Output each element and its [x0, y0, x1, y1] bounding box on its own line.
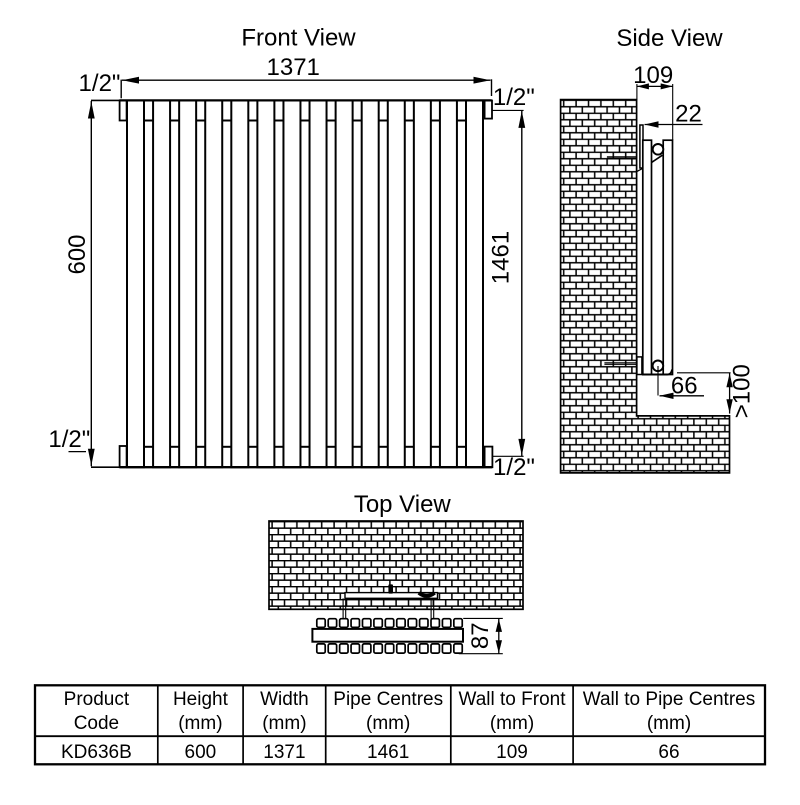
svg-text:(mm): (mm)	[490, 713, 534, 734]
svg-text:Pipe Centres: Pipe Centres	[333, 689, 443, 710]
svg-text:Width: Width	[260, 689, 309, 710]
svg-text:KD636B: KD636B	[61, 742, 132, 763]
svg-text:Code: Code	[74, 713, 119, 734]
svg-text:(mm): (mm)	[262, 713, 306, 734]
svg-text:(mm): (mm)	[366, 713, 410, 734]
svg-text:22: 22	[675, 101, 702, 128]
svg-text:Top View: Top View	[354, 491, 452, 518]
svg-text:Side View: Side View	[616, 25, 723, 52]
svg-text:1461: 1461	[367, 742, 409, 763]
svg-text:1/2": 1/2"	[79, 70, 121, 97]
svg-text:87: 87	[467, 622, 494, 649]
svg-text:(mm): (mm)	[647, 713, 691, 734]
svg-text:1371: 1371	[263, 742, 305, 763]
svg-text:1/2": 1/2"	[493, 84, 535, 111]
svg-text:600: 600	[185, 742, 217, 763]
svg-text:1/2": 1/2"	[493, 454, 535, 481]
svg-text:1371: 1371	[267, 54, 320, 81]
svg-text:66: 66	[658, 742, 679, 763]
svg-text:Product: Product	[64, 689, 130, 710]
svg-text:109: 109	[496, 742, 528, 763]
svg-text:Height: Height	[173, 689, 229, 710]
svg-text:Wall to Front: Wall to Front	[459, 689, 567, 710]
svg-text:1/2": 1/2"	[48, 426, 90, 453]
svg-text:Wall to Pipe Centres: Wall to Pipe Centres	[583, 689, 755, 710]
svg-text:109: 109	[633, 62, 673, 89]
svg-text:Front View: Front View	[241, 25, 356, 52]
svg-text:>100: >100	[729, 364, 756, 418]
svg-text:1461: 1461	[488, 231, 515, 284]
svg-text:600: 600	[64, 234, 91, 274]
svg-text:66: 66	[671, 372, 698, 399]
svg-text:(mm): (mm)	[178, 713, 222, 734]
